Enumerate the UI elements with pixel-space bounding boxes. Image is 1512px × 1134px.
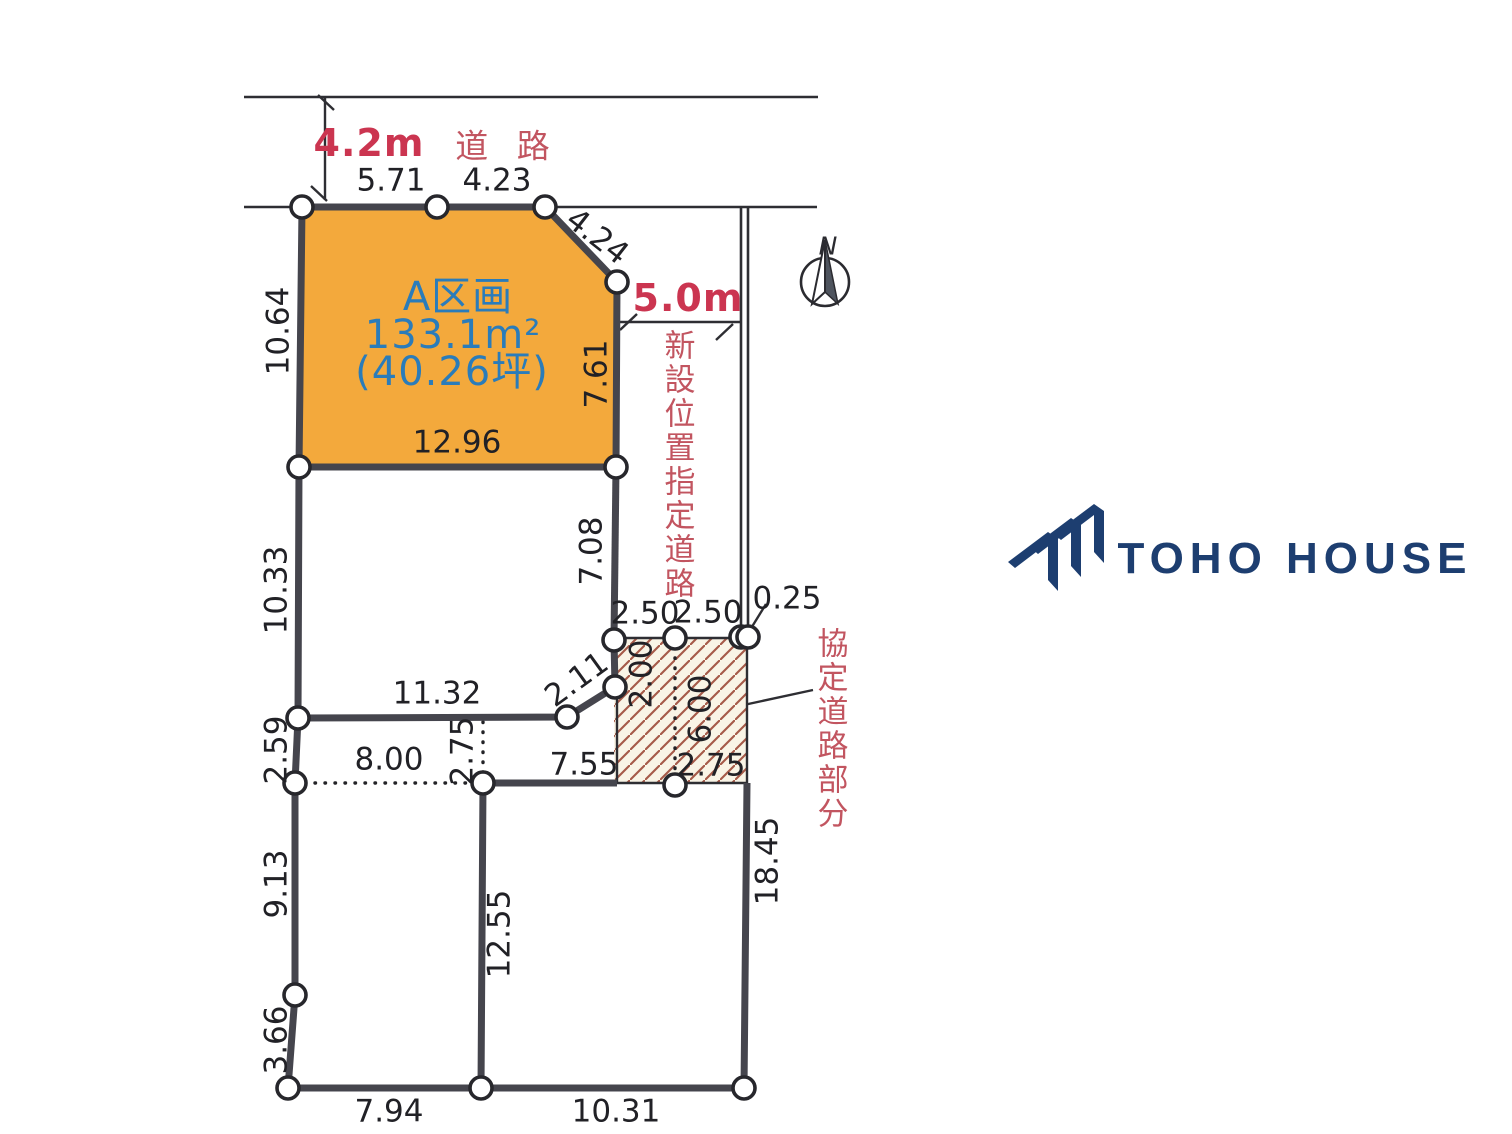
- logo-text: TOHO HOUSE: [1117, 534, 1472, 584]
- new-road-label: 新設位置指定道路: [661, 329, 692, 601]
- dim-west-upper: 10.64: [264, 287, 295, 376]
- dim-east-lower: 18.45: [753, 817, 784, 906]
- dim-hatch-top-2: 2.50: [673, 598, 742, 629]
- road-label: 道 路: [455, 130, 559, 163]
- land-plot-diagram-page: 5.71 4.23 4.24 10.64 7.61 12.96 10.33 7.…: [0, 0, 1512, 1134]
- dim-hatch-bottom: 2.75: [676, 751, 745, 782]
- road-width-side-label: 5.0m: [633, 279, 744, 317]
- dim-west-mid: 10.33: [262, 546, 293, 635]
- agreement-road-label: 協定道路部分: [814, 627, 845, 831]
- north-label: N: [819, 234, 838, 259]
- dim-west-small: 2.59: [262, 715, 293, 784]
- dim-road-frontage-1: 5.71: [356, 166, 425, 197]
- dim-bottom-width-2: 10.31: [572, 1097, 661, 1128]
- road-width-top-label: 4.2m: [314, 124, 425, 162]
- dim-road-frontage-2: 4.23: [462, 166, 531, 197]
- dim-hatch-top-1: 2.50: [610, 599, 679, 630]
- dim-dotted-height: 2.75: [448, 716, 479, 785]
- toho-logo-icon: [1008, 504, 1104, 591]
- dim-hatch-top-3: 0.25: [752, 584, 821, 615]
- plot-area-tsubo: (40.26坪): [355, 352, 549, 392]
- dim-mid-width: 11.32: [393, 679, 482, 710]
- dim-hatch-center: 6.00: [686, 674, 717, 743]
- dim-east-mid: 7.08: [577, 516, 608, 585]
- dim-south-width: 12.96: [413, 428, 502, 459]
- dim-west-bottom: 3.66: [262, 1005, 293, 1074]
- dim-center-vertical: 12.55: [485, 890, 516, 979]
- plot-name: A区画: [403, 277, 513, 317]
- dim-west-lower: 9.13: [262, 849, 293, 918]
- dim-south-mid-width: 7.55: [549, 750, 618, 781]
- dim-bottom-width-1: 7.94: [354, 1097, 423, 1128]
- dim-dotted-width: 8.00: [354, 745, 423, 776]
- dim-east-upper: 7.61: [582, 339, 613, 408]
- dim-hatch-west: 2.00: [627, 639, 658, 708]
